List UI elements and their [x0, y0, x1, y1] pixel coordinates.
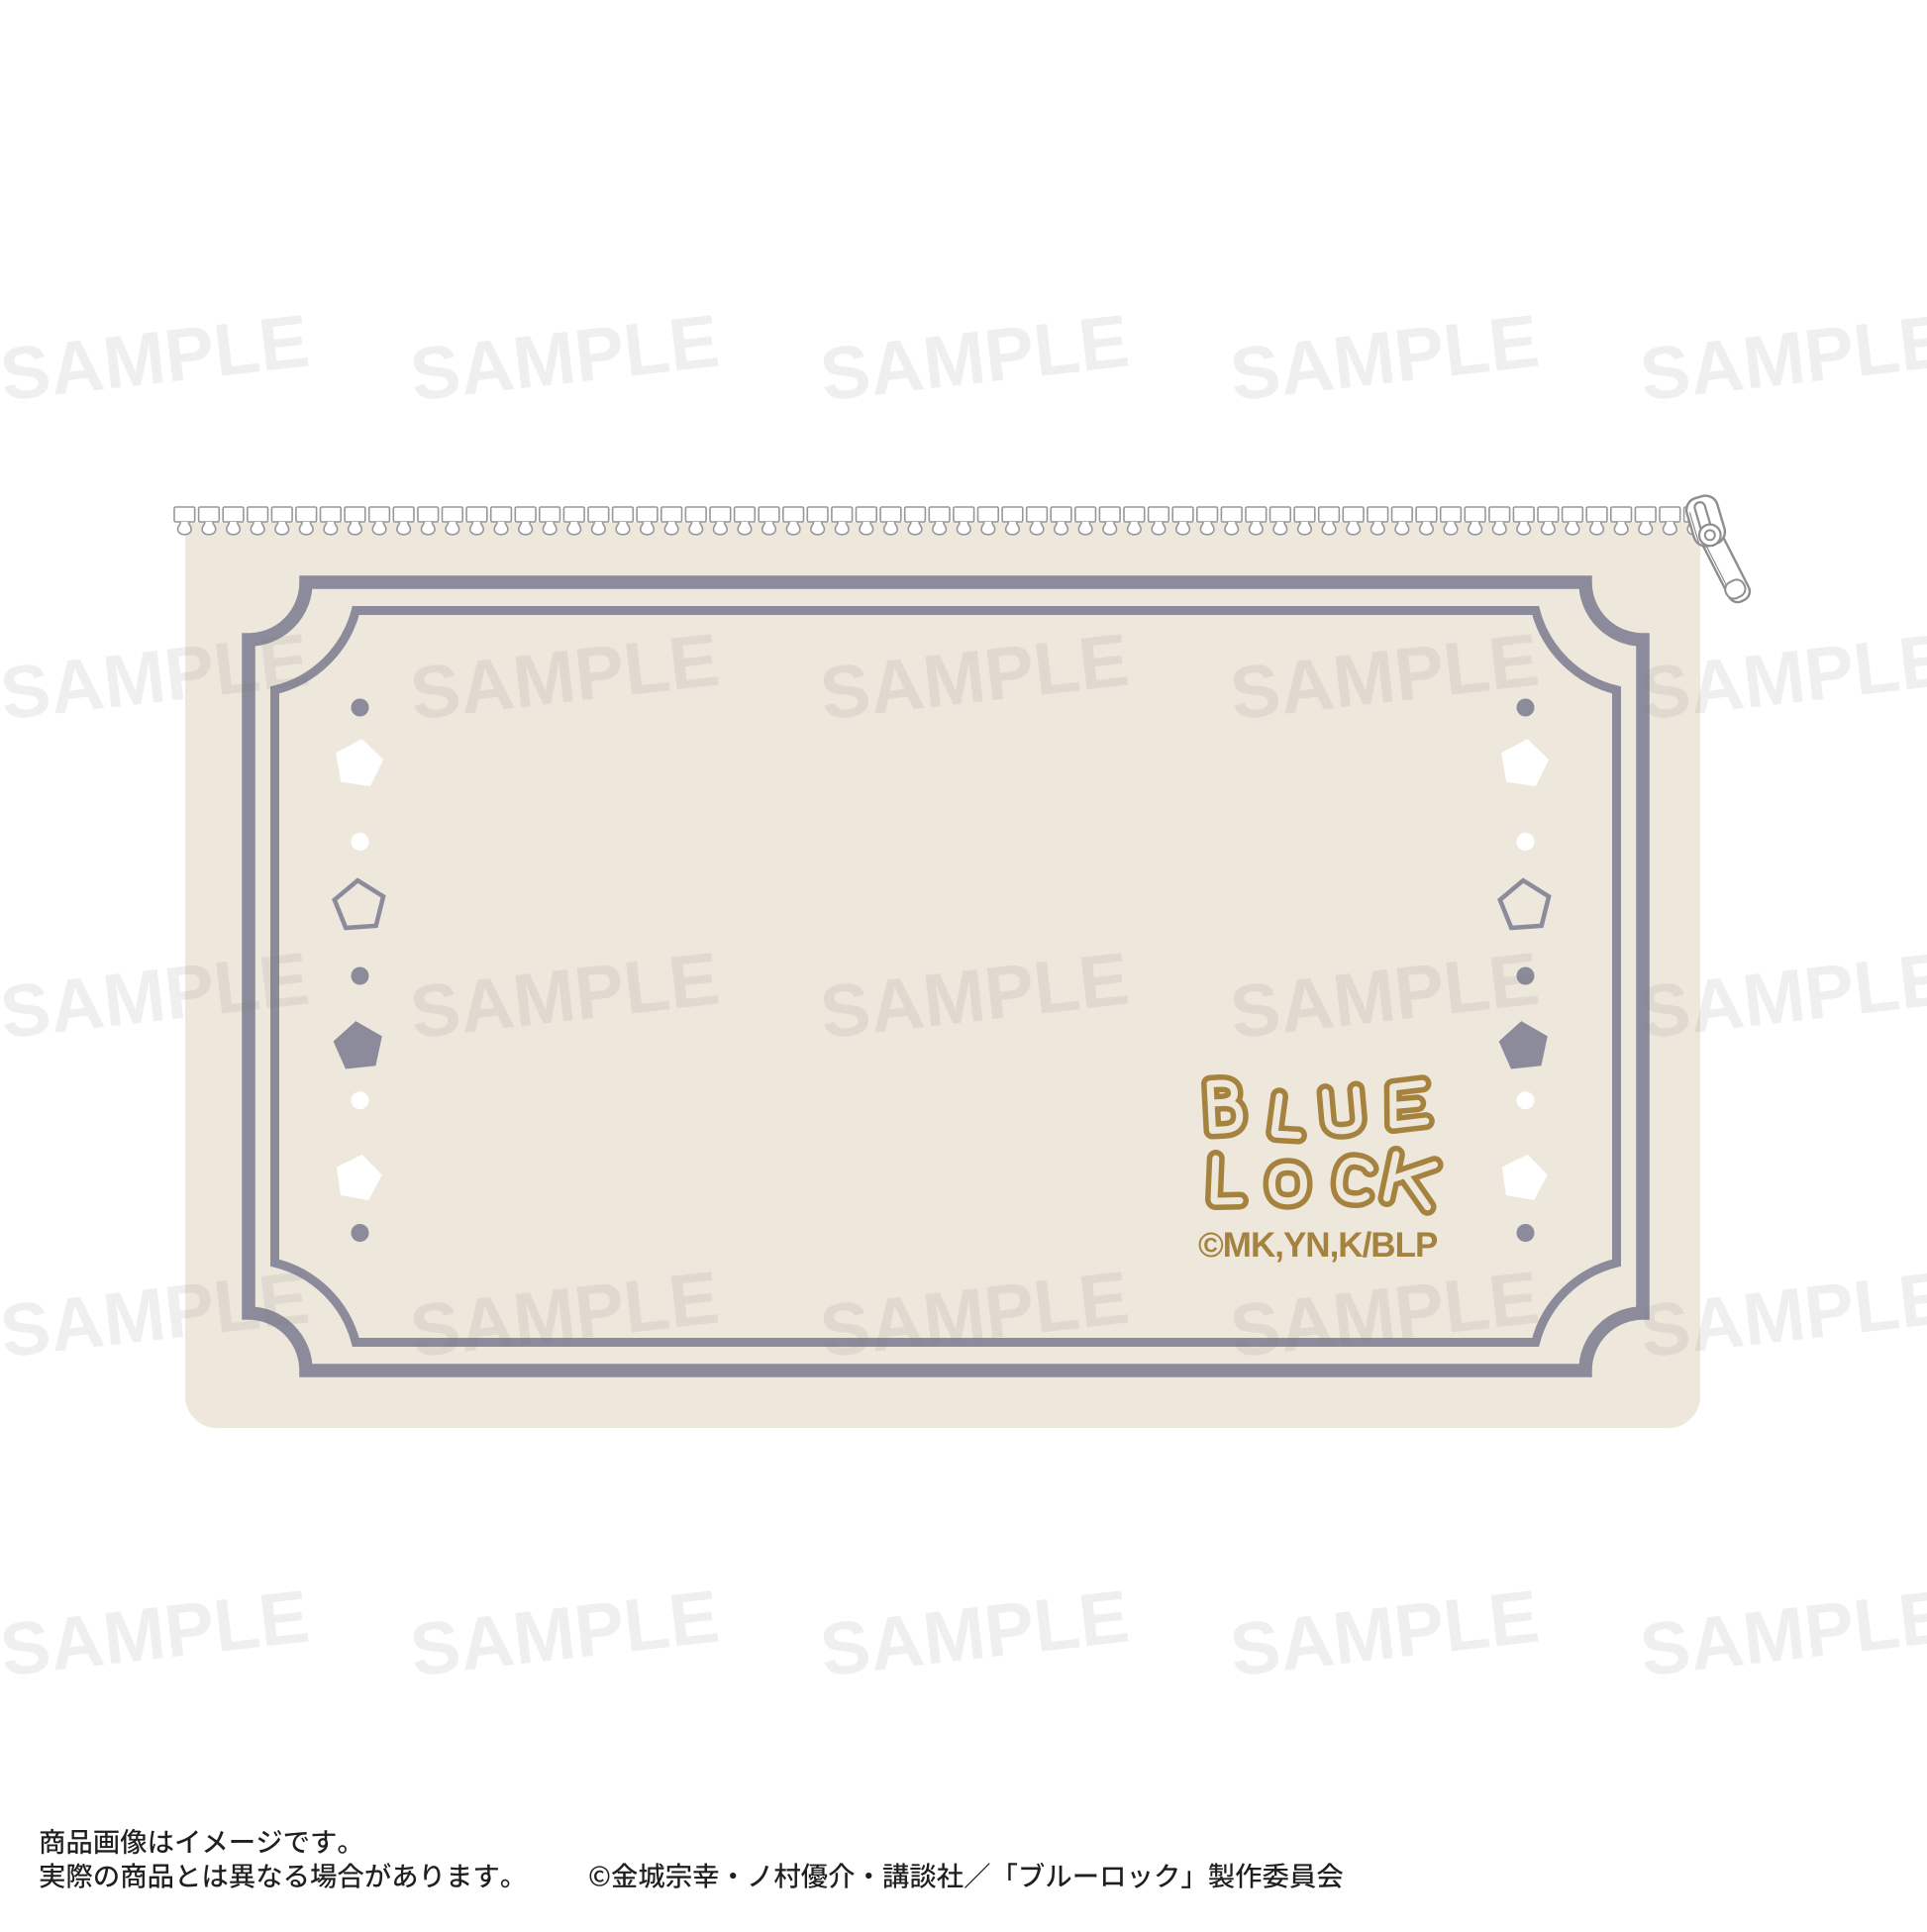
svg-text:©MK,YN,K/BLP: ©MK,YN,K/BLP: [1198, 1226, 1438, 1265]
